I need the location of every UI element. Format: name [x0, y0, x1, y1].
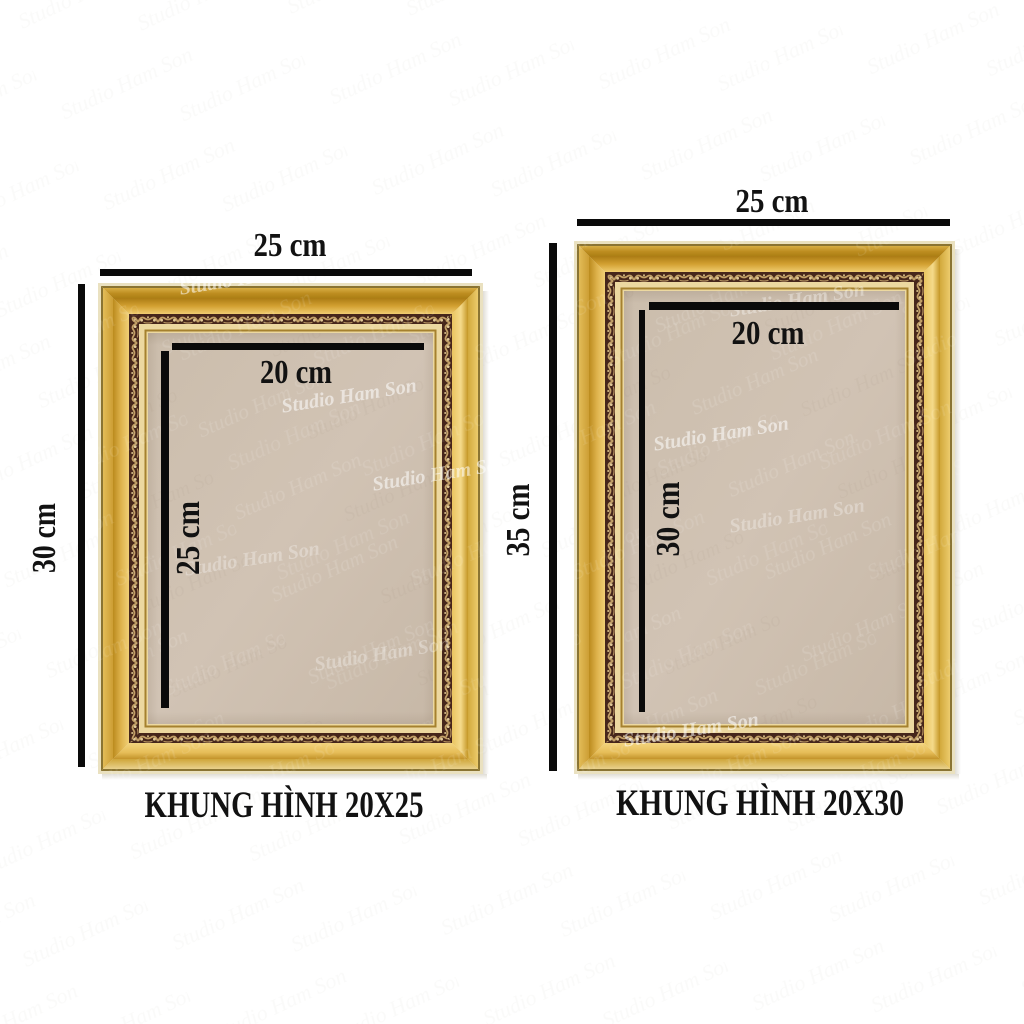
svg-text:25 cm: 25 cm	[254, 227, 327, 264]
svg-text:25 cm: 25 cm	[170, 501, 207, 575]
svg-text:KHUNG HÌNH 20X25: KHUNG HÌNH 20X25	[145, 784, 424, 826]
svg-text:20 cm: 20 cm	[260, 354, 332, 391]
svg-text:35 cm: 35 cm	[500, 484, 537, 557]
svg-text:30 cm: 30 cm	[650, 482, 687, 557]
svg-text:30 cm: 30 cm	[26, 503, 63, 573]
svg-text:KHUNG HÌNH 20X30: KHUNG HÌNH 20X30	[616, 782, 904, 824]
svg-text:25 cm: 25 cm	[736, 183, 809, 220]
svg-text:20 cm: 20 cm	[732, 315, 805, 352]
